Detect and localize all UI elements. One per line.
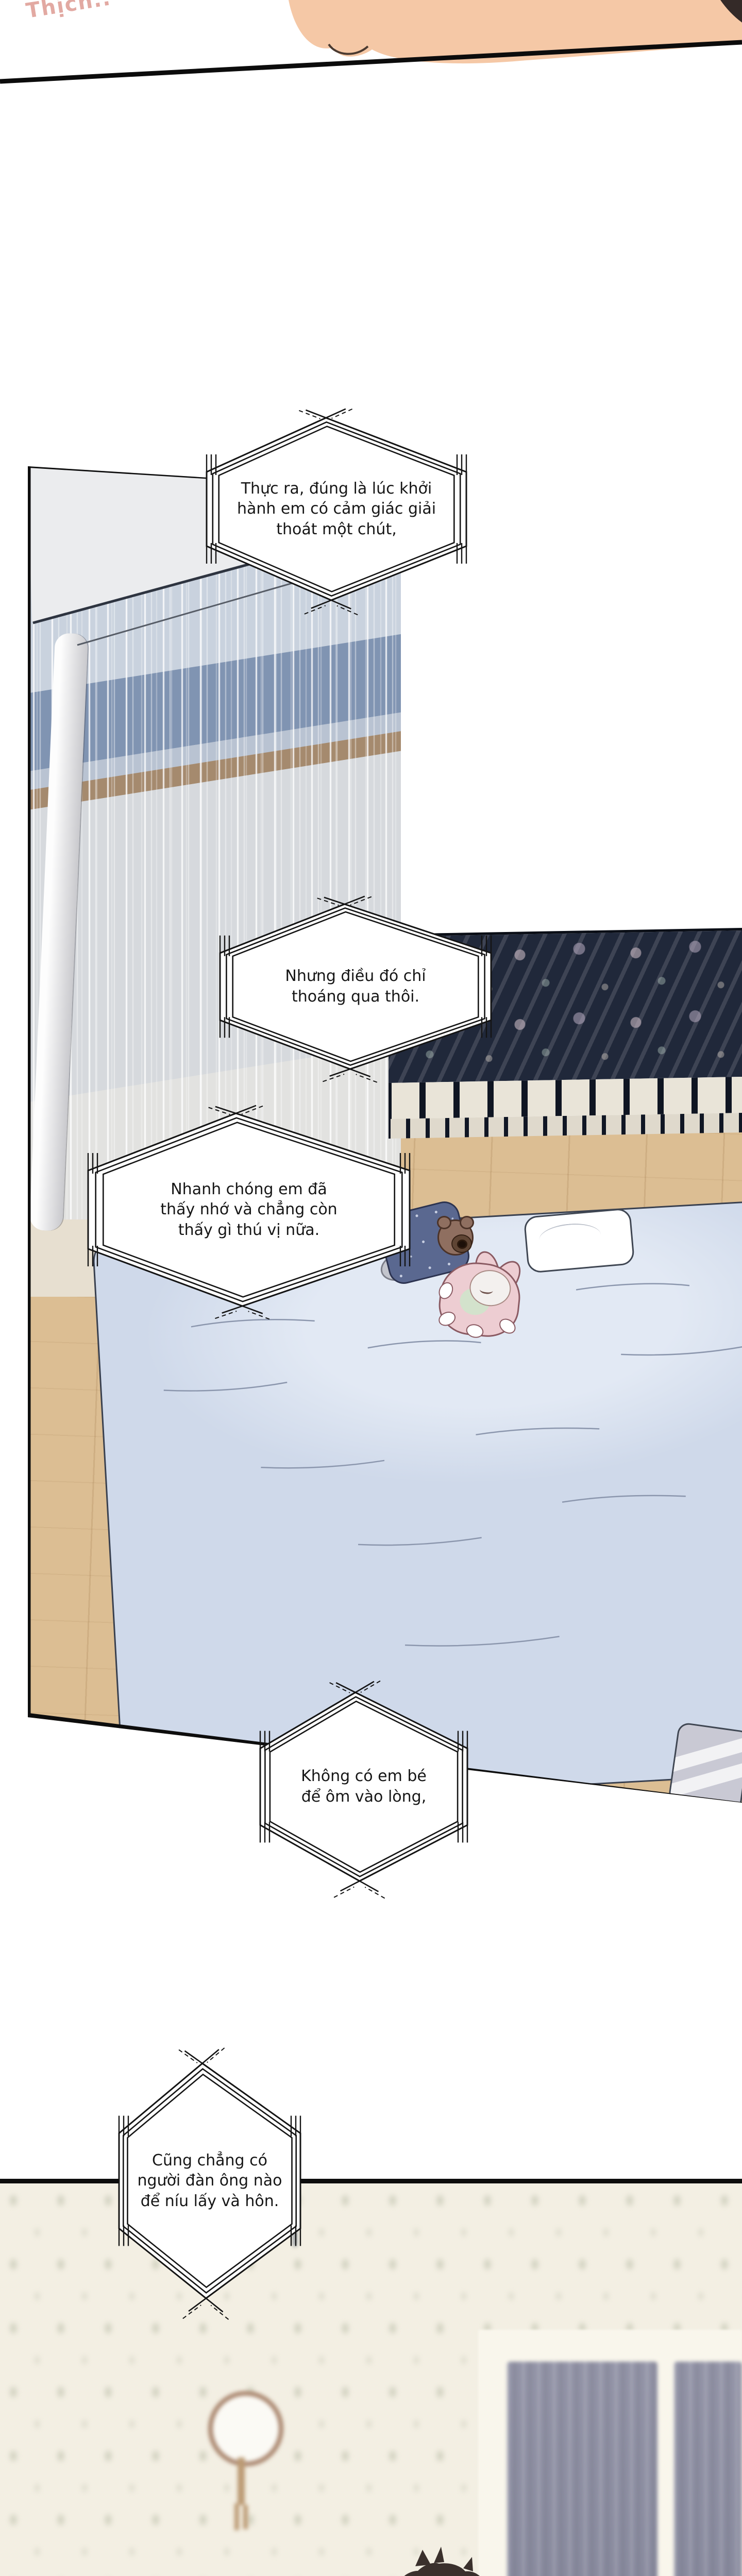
speech-bubble-3: Nhanh chóng em đã thấy nhớ và chẳng còn … bbox=[87, 1112, 411, 1308]
bubble-line: Nhanh chóng em đã bbox=[171, 1179, 327, 1200]
white-pillow-2 bbox=[0, 2179, 742, 2576]
bubble-line: thoát một chút, bbox=[276, 519, 397, 540]
bubble-line: để níu lấy và hôn. bbox=[141, 2191, 279, 2212]
bubble-line: Không có em bé bbox=[301, 1766, 427, 1787]
bubble-line: người đàn ông nào bbox=[138, 2171, 282, 2191]
speech-bubble-1: Thực ra, đúng là lúc khởi hành em có cảm… bbox=[205, 416, 468, 602]
speech-bubble-2: Nhưng điều đó chỉ thoáng qua thôi. bbox=[218, 903, 493, 1071]
bubble-text: Cũng chẳng có người đàn ông nào để níu l… bbox=[117, 2062, 302, 2300]
bubble-line: hành em có cảm giác giải bbox=[237, 499, 436, 519]
bubble-line: để ôm vào lòng, bbox=[301, 1787, 426, 1807]
speech-bubble-4: Không có em bé để ôm vào lòng, bbox=[259, 1691, 469, 1883]
bubble-text: Thực ra, đúng là lúc khởi hành em có cảm… bbox=[205, 416, 468, 602]
panel-sitting-room bbox=[0, 2179, 742, 2576]
bubble-text: Không có em bé để ôm vào lòng, bbox=[259, 1691, 469, 1883]
top-face-scene bbox=[0, 0, 742, 139]
bubble-line: thấy gì thú vị nữa. bbox=[178, 1220, 319, 1241]
webtoon-page: Thịch.. bbox=[0, 0, 742, 2576]
bubble-line: thoáng qua thôi. bbox=[292, 987, 419, 1007]
speech-bubble-5: Cũng chẳng có người đàn ông nào để níu l… bbox=[117, 2062, 302, 2300]
bubble-text: Nhưng điều đó chỉ thoáng qua thôi. bbox=[218, 903, 493, 1071]
bubble-line: Thực ra, đúng là lúc khởi bbox=[241, 479, 432, 499]
bubble-text: Nhanh chóng em đã thấy nhớ và chẳng còn … bbox=[87, 1112, 411, 1308]
panel2-top-border bbox=[0, 2179, 742, 2183]
bubble-line: Cũng chẳng có bbox=[152, 2150, 267, 2171]
bubble-line: Nhưng điều đó chỉ bbox=[285, 966, 426, 987]
bubble-line: thấy nhớ và chẳng còn bbox=[160, 1199, 337, 1220]
